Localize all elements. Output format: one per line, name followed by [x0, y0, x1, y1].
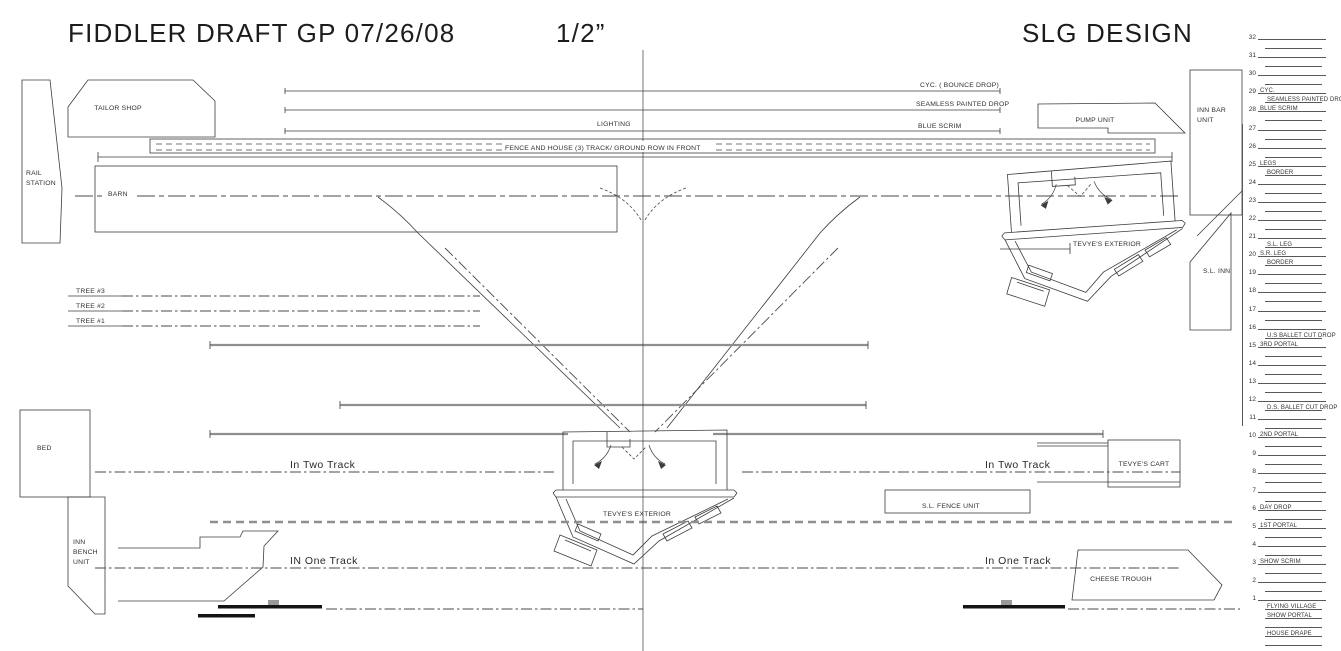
bed-unit — [20, 410, 90, 497]
label-in-two-track-right: In Two Track — [985, 459, 1051, 471]
sr-fence-unit — [118, 531, 278, 601]
label-inn-bar-unit-line2: UNIT — [1197, 117, 1214, 124]
inn-bar-unit — [1190, 70, 1243, 236]
lineset-number: 26 — [1245, 143, 1256, 150]
lineset-number: 4 — [1245, 541, 1256, 548]
tevyes-exterior-leader-line — [1000, 243, 1070, 254]
lineset-number: 29 — [1245, 88, 1256, 95]
upstage-line — [98, 152, 1172, 162]
barn-unit — [95, 166, 617, 232]
lineset-number: 20 — [1245, 251, 1256, 258]
masking-bars — [198, 600, 1240, 618]
tevyes-exterior-center — [553, 430, 737, 566]
lineset-number: 2 — [1245, 577, 1256, 584]
label-inn-bench-line3: UNIT — [73, 559, 90, 566]
label-sl-fence-unit: S.L. FENCE UNIT — [922, 503, 980, 510]
lineset-number: 14 — [1245, 360, 1256, 367]
label-tree-1: TREE #1 — [76, 318, 105, 325]
lineset-number: 8 — [1245, 468, 1256, 475]
lineset-bracket — [1242, 124, 1243, 426]
lineset-number: 3 — [1245, 559, 1256, 566]
converging-track-curves — [378, 188, 860, 432]
lineset-number: 17 — [1245, 306, 1256, 313]
lineset-number: 19 — [1245, 269, 1256, 276]
lineset-number: 23 — [1245, 197, 1256, 204]
track-lines — [95, 341, 1180, 472]
lineset-number: 16 — [1245, 324, 1256, 331]
ground-plan-sheet: FIDDLER DRAFT GP 07/26/08 1/2” SLG DESIG… — [0, 0, 1341, 651]
lineset-number: 21 — [1245, 233, 1256, 240]
label-lighting: LIGHTING — [597, 121, 631, 128]
tree-track-lines — [68, 296, 480, 326]
lineset-number: 11 — [1245, 414, 1256, 421]
label-tailor-shop: TAILOR SHOP — [94, 105, 142, 112]
label-blue-scrim: BLUE SCRIM — [918, 123, 962, 130]
lineset-number: 27 — [1245, 125, 1256, 132]
lineset-number: 18 — [1245, 287, 1256, 294]
lineset-number: 32 — [1245, 34, 1256, 41]
label-in-one-track-right: In One Track — [985, 555, 1051, 567]
lineset-number: 6 — [1245, 505, 1256, 512]
lineset-number: 15 — [1245, 342, 1256, 349]
lineset-number: 24 — [1245, 179, 1256, 186]
label-cheese-trough: CHEESE TROUGH — [1090, 576, 1152, 583]
label-rail-station-line1: RAIL — [26, 170, 42, 177]
lineset-number: 28 — [1245, 106, 1256, 113]
lineset-number: 30 — [1245, 70, 1256, 77]
label-tree-3: TREE #3 — [76, 288, 105, 295]
cheese-trough-unit — [1072, 550, 1222, 600]
label-in-one-track-left: IN One Track — [290, 555, 358, 567]
label-tevyes-cart: TEVYE'S CART — [1119, 461, 1170, 468]
label-in-two-track-left: In Two Track — [290, 459, 356, 471]
lineset-number: 7 — [1245, 487, 1256, 494]
lineset-number: 31 — [1245, 52, 1256, 59]
label-cyc-bounce-drop: CYC. ( BOUNCE DROP) — [920, 82, 999, 89]
lineset-number: 1 — [1245, 595, 1256, 602]
label-tree-2: TREE #2 — [76, 303, 105, 310]
label-inn-bench-line1: INN — [73, 539, 85, 546]
ground-plan-drawing: CYC. ( BOUNCE DROP) SEAMLESS PAINTED DRO… — [0, 0, 1341, 651]
label-rail-station-line2: STATION — [26, 180, 56, 187]
label-tevyes-exterior-right: TEVYE'S EXTERIOR — [1073, 241, 1141, 248]
lineset-number: 10 — [1245, 432, 1256, 439]
lineset-number: 12 — [1245, 396, 1256, 403]
label-pump-unit: PUMP UNIT — [1075, 117, 1114, 124]
label-barn: BARN — [108, 191, 128, 198]
lineset-number: 9 — [1245, 450, 1256, 457]
label-tevyes-exterior-center: TEVYE'S EXTERIOR — [603, 511, 671, 518]
tevyes-exterior-right — [997, 160, 1190, 309]
lineset-row — [1265, 636, 1322, 646]
label-inn-bar-unit-line1: INN BAR — [1197, 107, 1226, 114]
lineset-schedule: 32313029CYC.SEAMLESS PAINTED DROP28BLUE … — [1246, 0, 1341, 651]
label-seamless-painted-drop: SEAMLESS PAINTED DROP — [916, 101, 1009, 108]
batten-lines — [285, 88, 1000, 134]
label-bed: BED — [37, 445, 52, 452]
lineset-number: 22 — [1245, 215, 1256, 222]
label-fence-house-track: FENCE AND HOUSE (3) TRACK/ GROUND ROW IN… — [505, 145, 701, 152]
label-inn-bench-line2: BENCH — [73, 549, 98, 556]
rail-station-unit — [22, 80, 62, 243]
label-sl-inn: S.L. INN — [1203, 268, 1230, 275]
lineset-number: 5 — [1245, 523, 1256, 530]
lineset-number: 25 — [1245, 161, 1256, 168]
lineset-number: 13 — [1245, 378, 1256, 385]
